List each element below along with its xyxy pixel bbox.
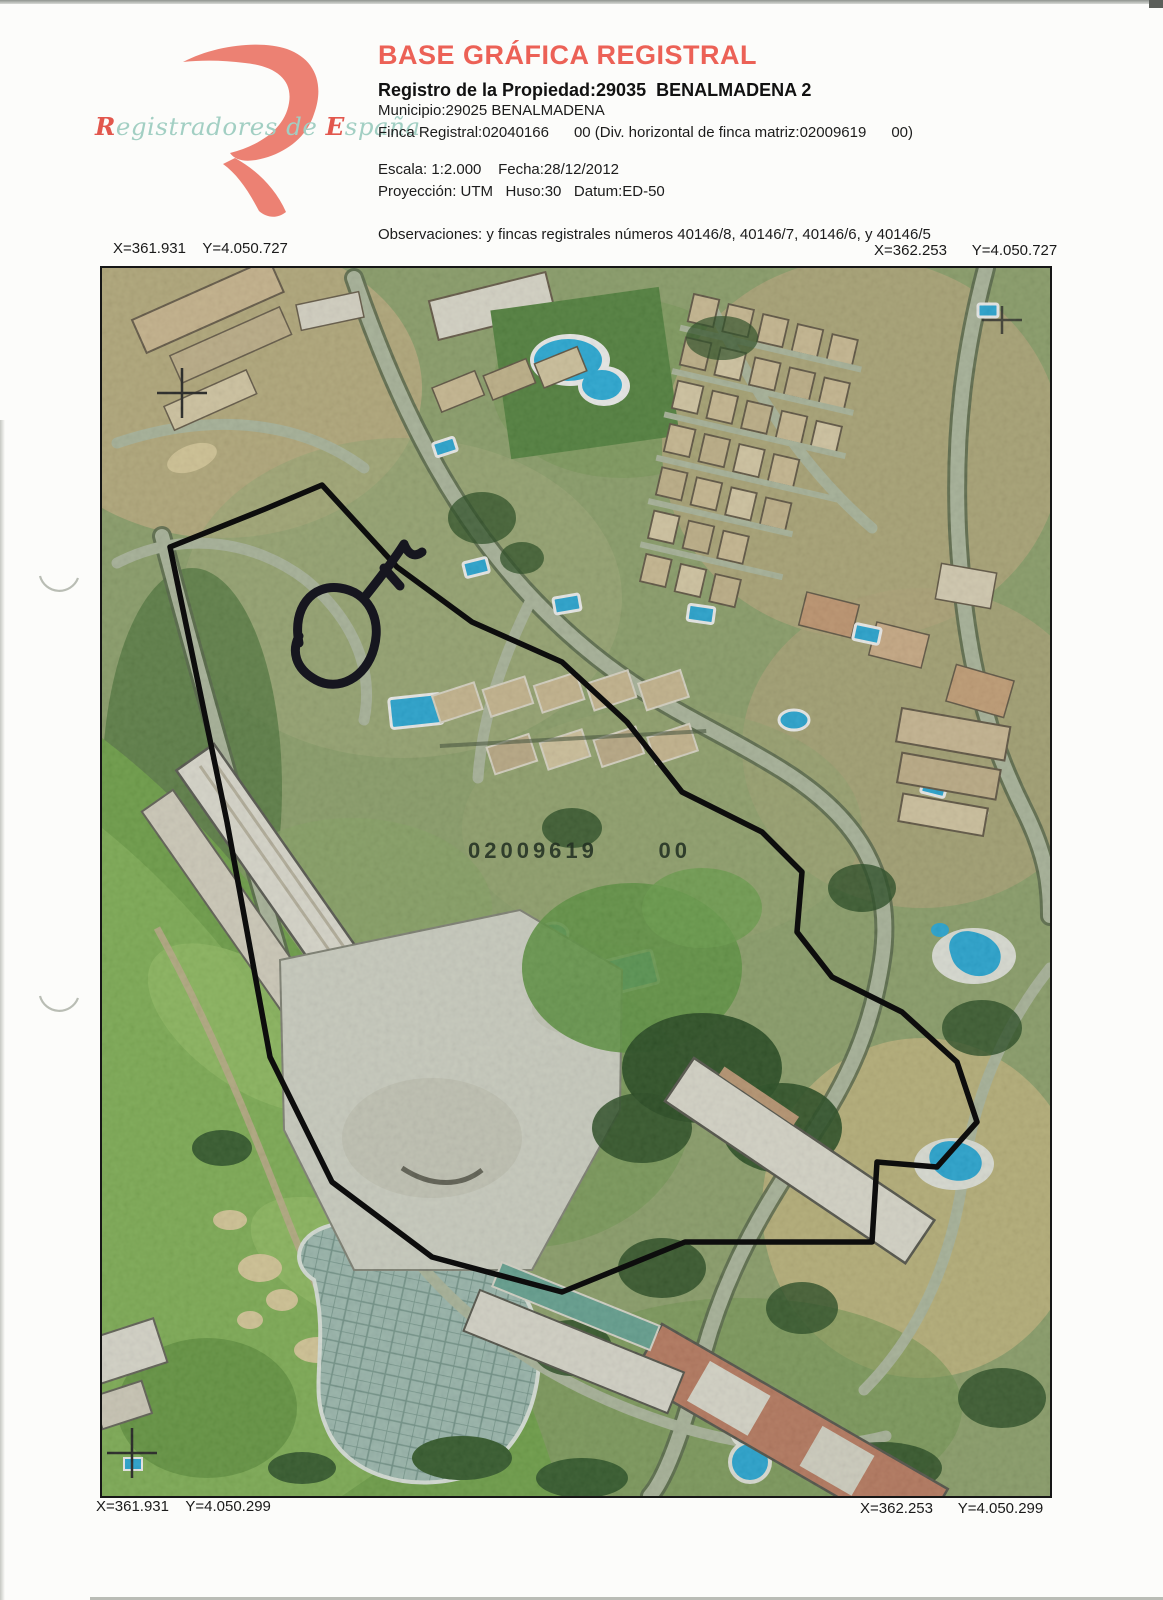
scanned-document-page: { "logo": { "brand_r": "R", "brand_mid":… [0, 0, 1163, 1600]
coord-bottom-left: X=361.931 Y=4.050.299 [96, 1498, 271, 1515]
scan-top-edge [0, 0, 1163, 4]
scan-corner-mark [1149, 0, 1163, 8]
logo-letter-e: E [326, 112, 345, 141]
observations-line: Observaciones: y fincas registrales núme… [378, 226, 931, 243]
finca-registral-line: Finca Registral:02040166 00 (Div. horizo… [378, 124, 913, 141]
coord-top-right: X=362.253 Y=4.050.727 [874, 242, 1057, 259]
document-title: BASE GRÁFICA REGISTRAL [378, 40, 757, 71]
photo-grain [102, 268, 1050, 1496]
aerial-map: 02009619 00 [102, 268, 1050, 1496]
scan-left-edge [0, 420, 5, 1600]
logo-letter-r: R [95, 112, 116, 141]
map-overlay-label: 02009619 00 [468, 838, 691, 863]
property-registry-line: Registro de la Propiedad:29035 BENALMADE… [378, 80, 811, 101]
registradores-logo: Registradores de España [95, 30, 405, 230]
aerial-map-frame: 02009619 00 [100, 266, 1052, 1498]
registradores-logo-text: Registradores de España [95, 112, 405, 141]
scale-date-line: Escala: 1:2.000 Fecha:28/12/2012 [378, 161, 619, 178]
logo-text-mid: egistradores de [116, 112, 326, 141]
hole-punch-shadow-top [36, 556, 82, 602]
coord-top-left: X=361.931 Y=4.050.727 [113, 240, 288, 257]
hole-punch-shadow-bottom [36, 976, 82, 1022]
municipality-line: Municipio:29025 BENALMADENA [378, 102, 605, 119]
projection-line: Proyección: UTM Huso:30 Datum:ED-50 [378, 183, 665, 200]
coord-bottom-right: X=362.253 Y=4.050.299 [860, 1500, 1043, 1517]
